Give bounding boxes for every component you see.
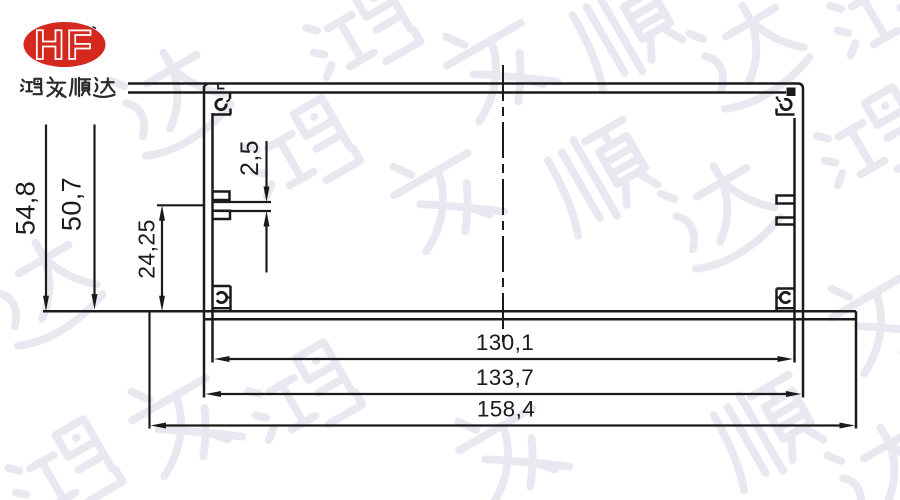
svg-text:130,1: 130,1 (476, 330, 534, 355)
svg-text:2,5: 2,5 (236, 140, 264, 176)
svg-text:133,7: 133,7 (476, 365, 534, 390)
svg-text:HF: HF (34, 21, 94, 68)
svg-text:54,8: 54,8 (11, 181, 41, 235)
svg-text:24,25: 24,25 (134, 219, 160, 279)
svg-text:50,7: 50,7 (57, 177, 87, 231)
svg-text:158,4: 158,4 (477, 397, 535, 422)
